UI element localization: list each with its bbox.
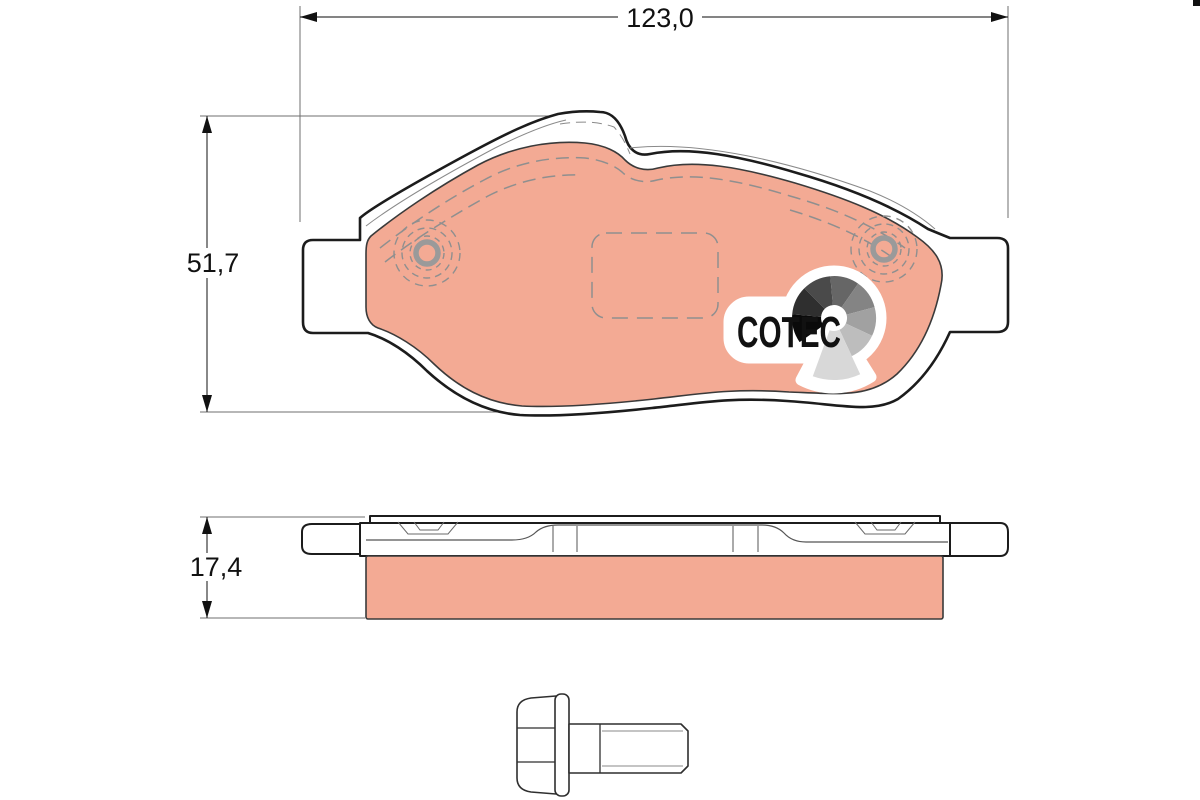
arrowhead-down-icon <box>202 601 212 618</box>
cotec-logo-text: COTEC <box>737 308 841 357</box>
left-tab-side <box>302 524 360 554</box>
arrowhead-left-icon <box>300 12 317 22</box>
corner-mark <box>1193 0 1200 6</box>
bolt-flange <box>555 694 569 796</box>
arrowhead-right-icon <box>991 12 1008 22</box>
dimension-thickness-label: 17,4 <box>190 552 243 582</box>
bolt-illustration <box>517 694 688 796</box>
dimension-width-label: 123,0 <box>626 3 694 33</box>
dimension-height-label: 51,7 <box>187 248 240 278</box>
right-tab-side <box>950 523 1008 556</box>
arrowhead-down-icon <box>202 395 212 412</box>
friction-material-side <box>366 556 943 619</box>
pad-side-view <box>302 516 1008 619</box>
arrowhead-up-icon <box>202 517 212 534</box>
pad-top-view <box>303 111 1008 415</box>
bolt-head <box>517 696 556 794</box>
drawing-canvas: 123,0 51,7 <box>0 0 1200 800</box>
brake-pad-technical-drawing: 123,0 51,7 <box>0 0 1200 800</box>
arrowhead-up-icon <box>202 116 212 133</box>
